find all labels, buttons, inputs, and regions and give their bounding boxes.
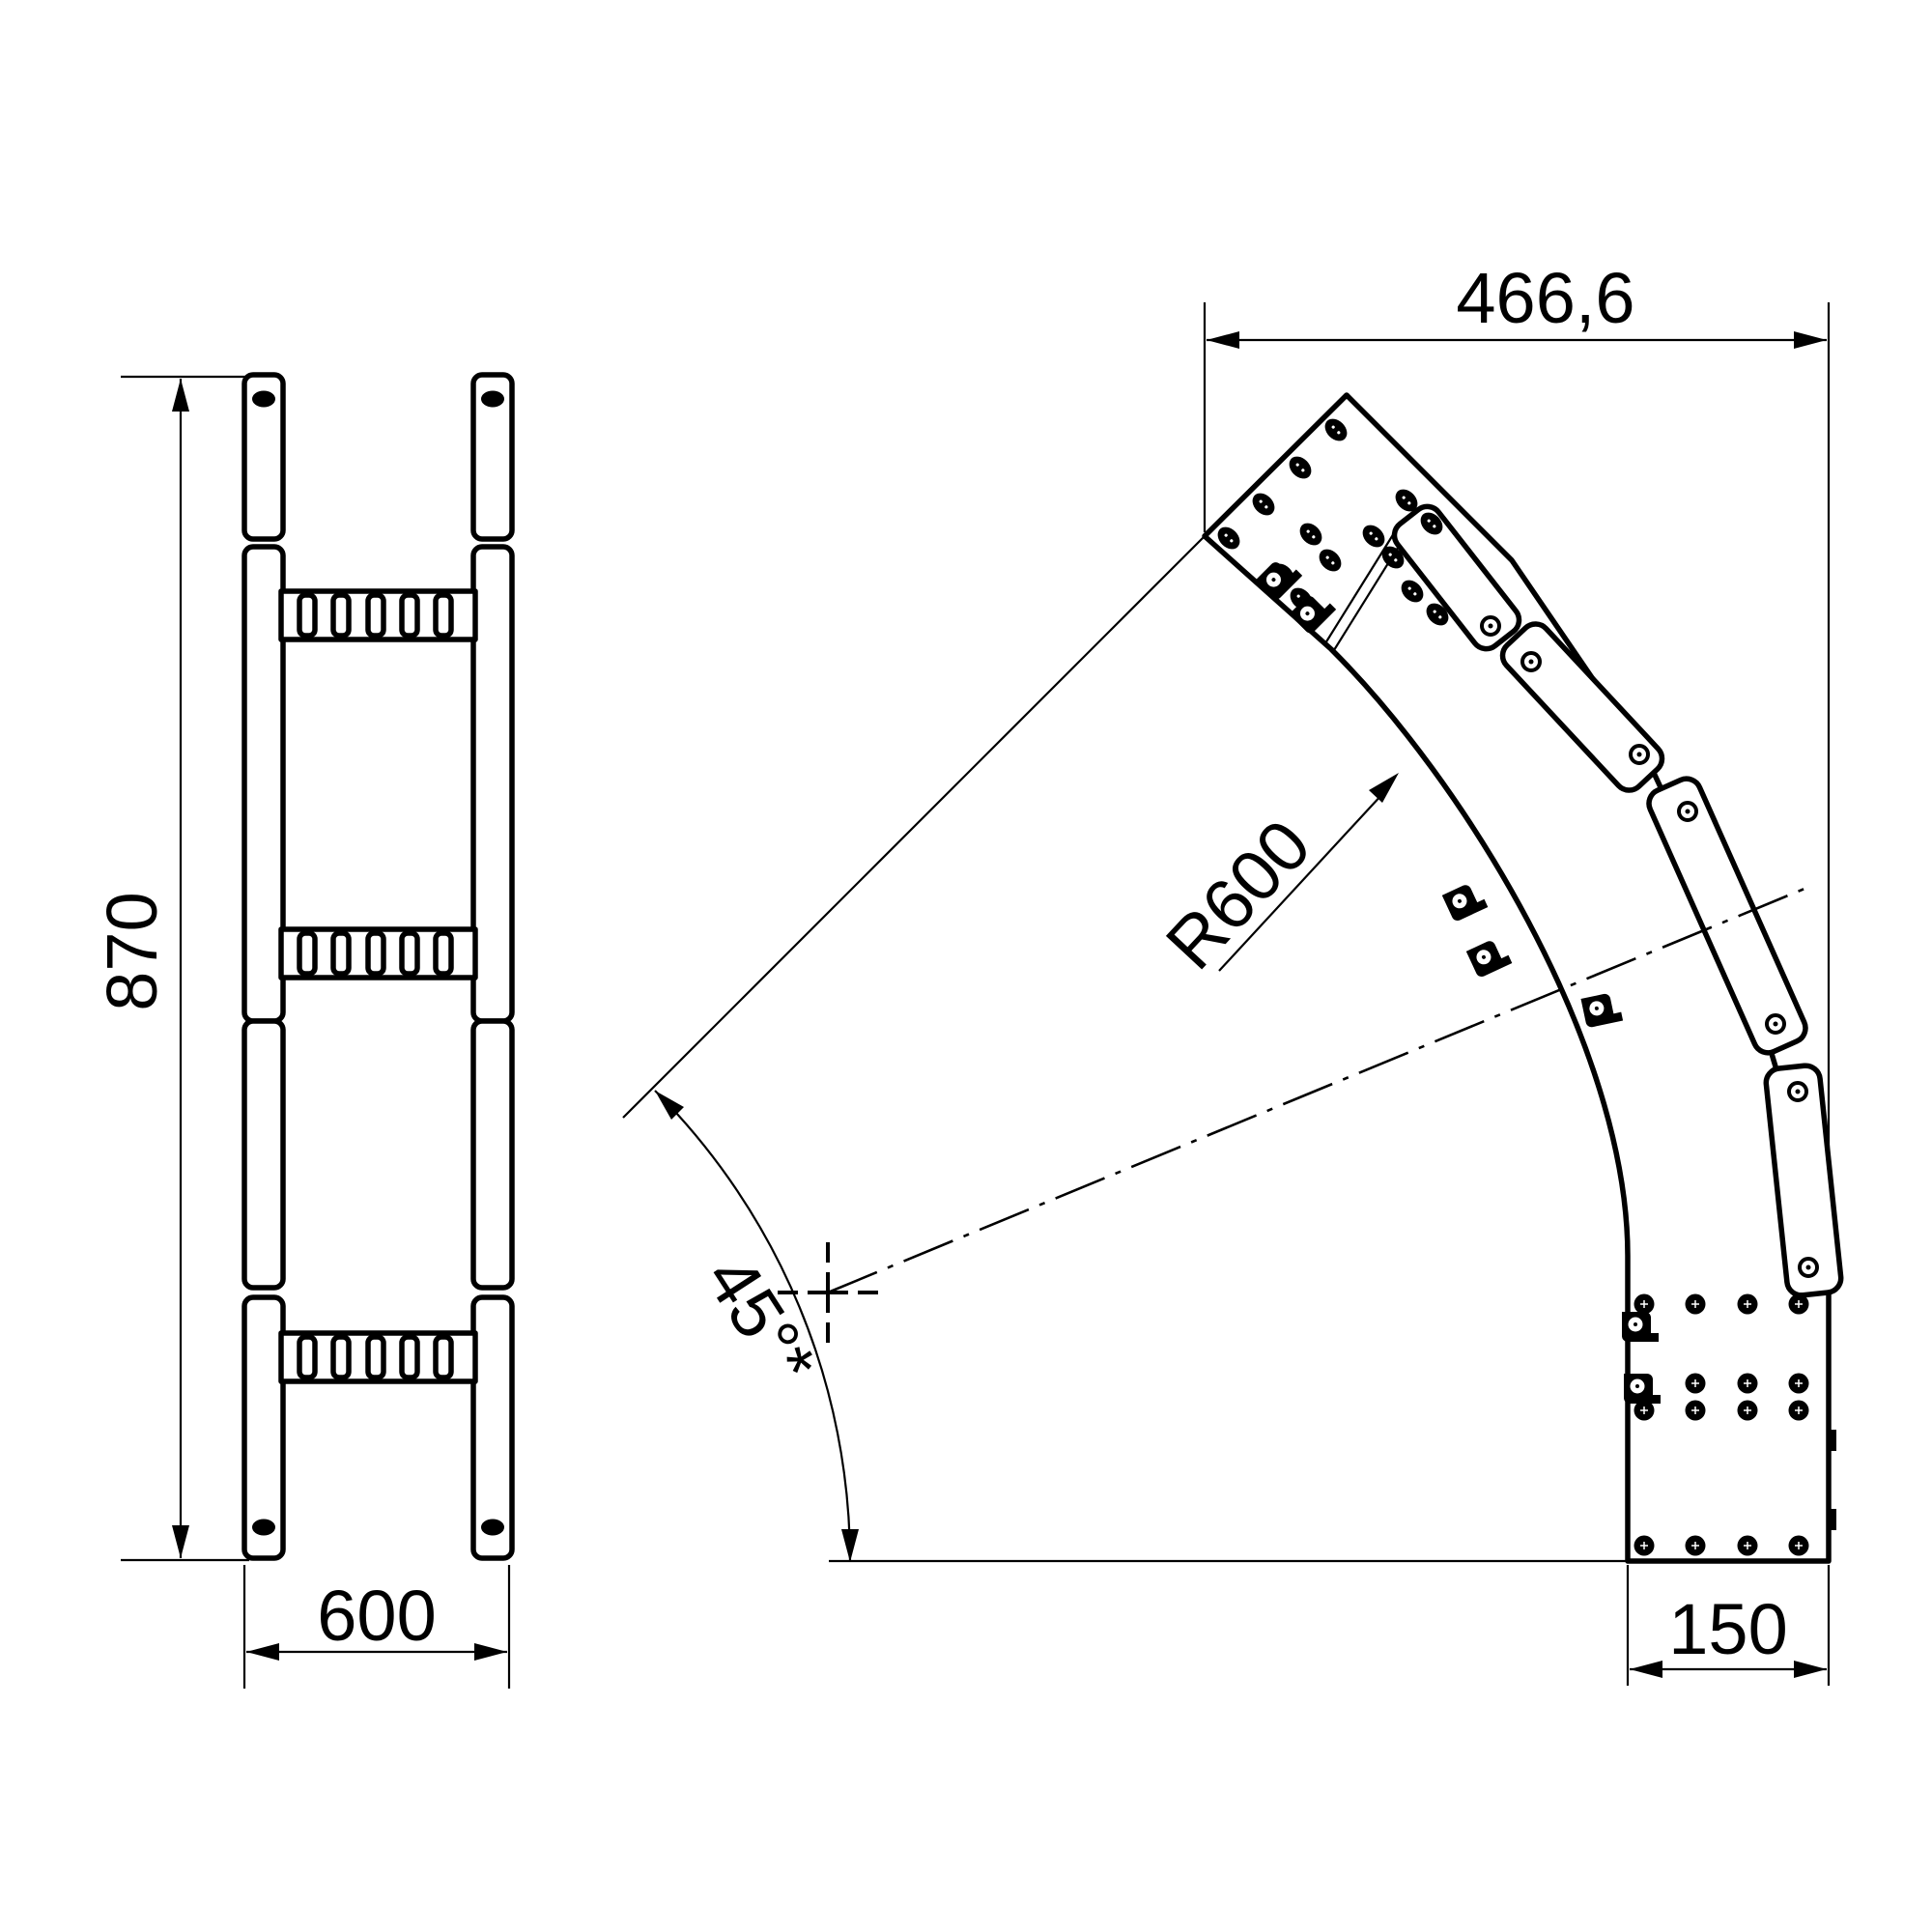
dimension-870: 870 <box>92 377 249 1560</box>
dimension-466-6: 466,6 <box>1207 258 1827 349</box>
clamp <box>1442 880 1489 923</box>
angle-ext-line <box>623 536 1205 1118</box>
edge-tab <box>1827 1509 1836 1530</box>
rung <box>281 929 475 978</box>
plan-view: 466,6 R600 45°* 150 <box>623 258 1842 1686</box>
dimension-r600: R600 <box>1151 773 1399 984</box>
dim-label-r600: R600 <box>1151 805 1325 984</box>
right-rail <box>473 375 512 1558</box>
clamp <box>1466 936 1513 979</box>
rung <box>281 1333 475 1381</box>
edge-tab <box>1827 1430 1836 1451</box>
dim-label-45deg: 45°* <box>691 1242 832 1400</box>
dimension-150: 150 <box>1628 1565 1829 1686</box>
dimension-600: 600 <box>244 1565 509 1689</box>
dim-label-600: 600 <box>317 1576 436 1656</box>
rung <box>281 591 475 639</box>
dim-label-870: 870 <box>92 892 172 1010</box>
left-rail <box>244 375 283 1558</box>
dim-label-466-6: 466,6 <box>1456 258 1634 338</box>
technical-drawing: 870 600 <box>0 0 1932 1932</box>
dim-label-150: 150 <box>1668 1589 1787 1669</box>
front-view: 870 600 <box>92 375 512 1689</box>
rungs <box>281 591 475 1381</box>
drawing-sheet: 870 600 <box>0 0 1932 1932</box>
